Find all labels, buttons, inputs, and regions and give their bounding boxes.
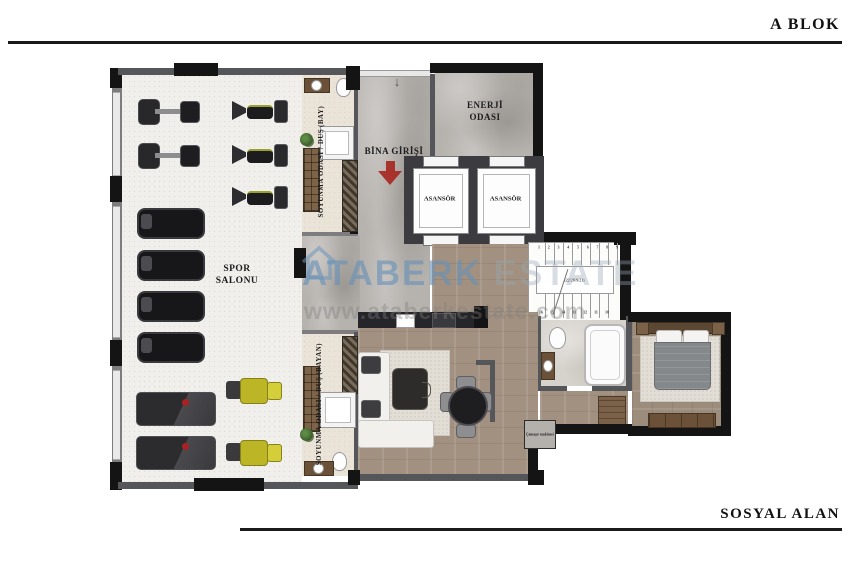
bed-blanket <box>654 342 711 390</box>
treadmill <box>137 332 205 363</box>
locker-women-label: SOYUNMA ODASI / DUŞ (BAYAN) <box>304 344 334 464</box>
area-title: SOSYAL ALAN <box>640 506 840 523</box>
partition <box>476 360 495 365</box>
wardrobe <box>648 413 716 428</box>
sink <box>311 80 322 91</box>
bathtub <box>584 324 626 386</box>
toilet <box>332 452 347 471</box>
kitchen-counter <box>358 312 476 328</box>
entry-direction-arrow-icon: ↓ <box>390 74 404 92</box>
washing-machine-label: Çamaşır makinesi <box>524 420 556 449</box>
living-bottom-wall <box>352 474 544 481</box>
partition <box>490 360 495 422</box>
energy-label-line1: ENERJİ <box>467 100 503 110</box>
window <box>113 92 120 176</box>
dining-table <box>448 386 488 426</box>
toilet <box>549 327 566 349</box>
partition <box>302 330 358 334</box>
nightstand <box>712 322 725 335</box>
wall-segment <box>174 63 218 76</box>
wall-segment <box>474 306 488 328</box>
locker-women-suffix: (BAYAN) <box>315 343 322 375</box>
corridor-arm <box>302 236 360 330</box>
gym-top-wall <box>118 68 358 75</box>
kitchen-sink <box>396 314 415 328</box>
treadmill <box>137 291 205 322</box>
locker-men-suffix: (BAY) <box>317 105 324 126</box>
gym-machine <box>138 98 200 126</box>
dining-chair <box>456 424 476 438</box>
wall-segment <box>294 248 306 278</box>
block-title: A BLOK <box>640 16 840 34</box>
window <box>113 206 120 338</box>
entrance-arrow-head-icon <box>378 171 402 185</box>
wall-segment <box>110 176 122 202</box>
wall-segment <box>628 312 730 322</box>
treadmill <box>137 250 205 281</box>
hallway <box>432 244 540 312</box>
locker-men-name: SOYUNMA ODASI / DUŞ <box>317 128 324 217</box>
exercise-bike <box>232 184 288 210</box>
locker-men-label: SOYUNMA ODASI / DUŞ (BAY) <box>306 95 336 227</box>
sofa-horizontal <box>358 420 434 448</box>
top-divider <box>8 41 842 44</box>
stair-dimension-note: (22/28/9/21) <box>536 276 612 284</box>
stair-step-numbers-bottom: 16151413121110 <box>539 310 609 315</box>
bottom-divider <box>240 528 842 531</box>
wall-segment <box>430 63 542 73</box>
coffee-table <box>392 368 428 410</box>
stair-step-numbers-top: 123456789 <box>538 245 618 250</box>
bench-seat <box>598 396 626 426</box>
weight-machine <box>226 376 282 406</box>
wall-segment <box>110 340 122 366</box>
floor-plan-page: { "header": { "block_label": "A BLOK" },… <box>0 0 850 566</box>
treadmill <box>137 208 205 239</box>
elevator-left-label: ASANSÖR <box>413 192 467 204</box>
nightstand <box>636 322 649 335</box>
exercise-bike <box>232 98 288 124</box>
exercise-bike <box>232 142 288 168</box>
locker-women-name: SOYUNMA ODASI / DUŞ <box>315 376 322 465</box>
elevator-right-label: ASANSÖR <box>477 192 534 204</box>
wall-segment <box>533 63 543 166</box>
energy-label: ENERJİ ODASI <box>444 100 526 123</box>
elevator-door <box>423 156 459 167</box>
wall-segment <box>348 470 360 485</box>
sofa-cushion <box>361 400 381 418</box>
sink <box>543 360 553 372</box>
shaft-hatch <box>342 336 358 394</box>
bench-machine <box>136 392 216 426</box>
window <box>113 370 120 460</box>
entrance-arrow-icon <box>386 161 395 171</box>
gym-machine <box>138 142 200 170</box>
gym-label-line2: SALONU <box>216 276 259 286</box>
sofa-cushion <box>361 356 381 374</box>
stove <box>432 313 456 328</box>
elevator-door <box>489 156 525 167</box>
weight-machine <box>226 438 282 468</box>
bench-machine <box>136 436 216 470</box>
wall-segment <box>194 478 264 491</box>
energy-label-line2: ODASI <box>469 112 500 122</box>
gym-label-line1: SPOR <box>223 264 250 274</box>
shaft-hatch <box>342 160 358 232</box>
wall-segment <box>346 66 360 90</box>
